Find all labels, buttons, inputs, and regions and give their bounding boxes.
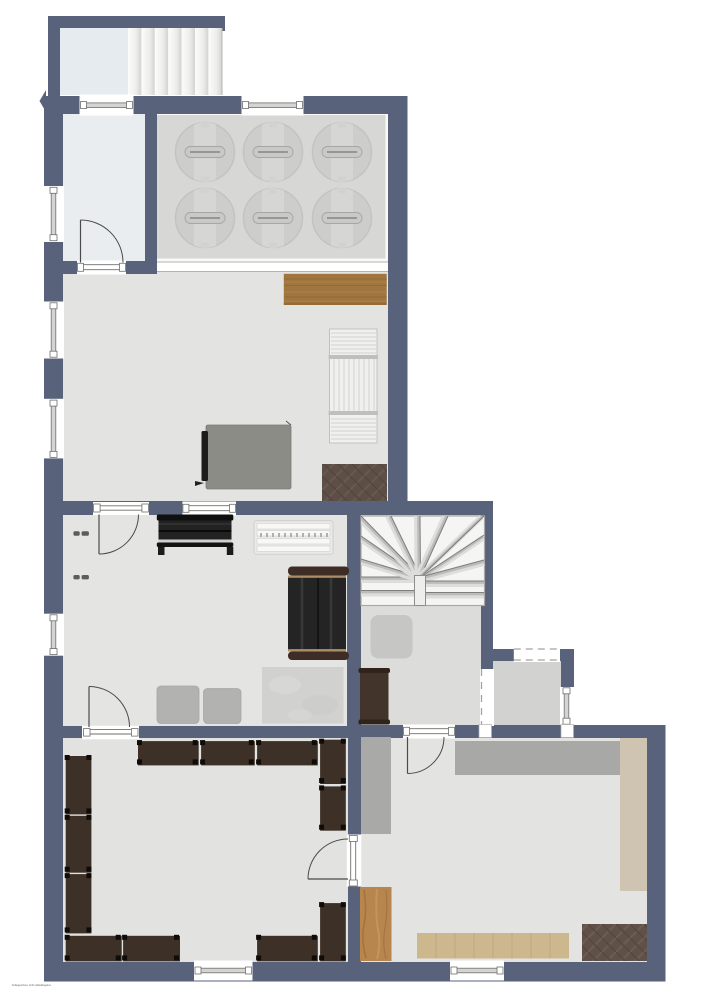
svg-text:Kellergeschoss, nicht maßstabs: Kellergeschoss, nicht maßstabsgetreu [12,983,51,987]
